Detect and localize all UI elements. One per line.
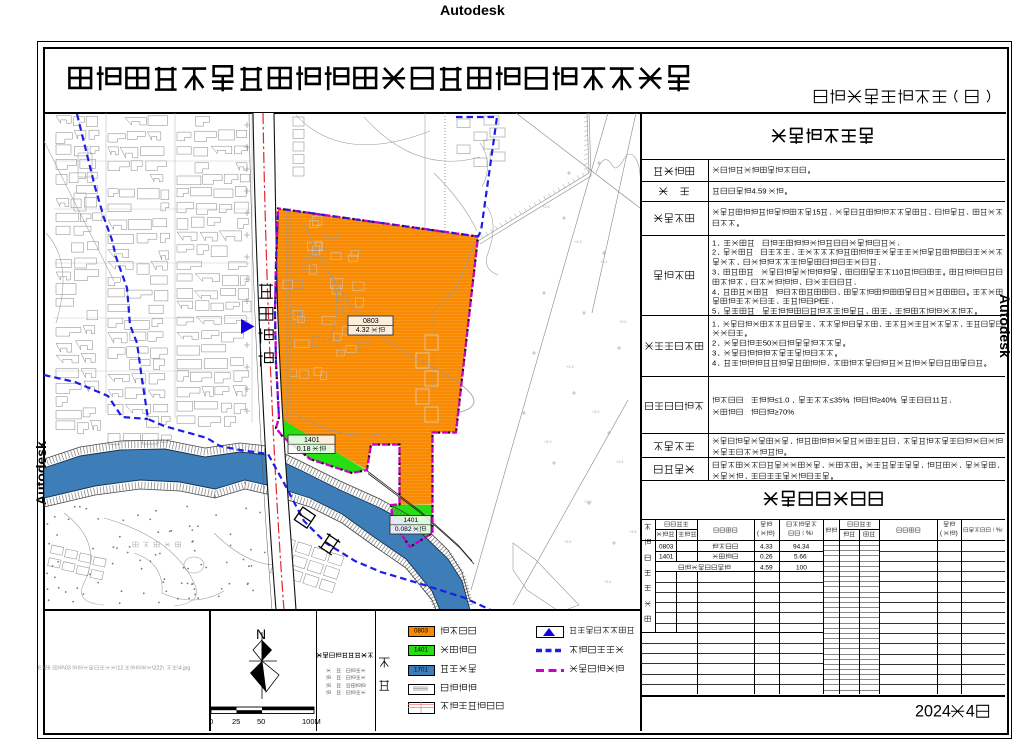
svg-text:1401: 1401 xyxy=(403,517,418,524)
svg-text:4: 4 xyxy=(712,358,717,367)
svg-text:%: % xyxy=(996,527,1001,533)
svg-text:≥70%: ≥70% xyxy=(774,407,794,416)
svg-text:+3.2: +3.2 xyxy=(592,410,600,414)
svg-text:1401: 1401 xyxy=(304,437,320,444)
svg-text:3: 3 xyxy=(712,348,716,357)
svg-text:+3.3: +3.3 xyxy=(566,365,574,369)
svg-text:≤1.0: ≤1.0 xyxy=(774,395,789,404)
svg-text:0803: 0803 xyxy=(363,318,379,325)
svg-text:+3.4: +3.4 xyxy=(600,260,608,264)
svg-text:0803: 0803 xyxy=(659,543,674,550)
svg-text:0.18: 0.18 xyxy=(297,446,311,453)
svg-text:1: 1 xyxy=(712,319,716,328)
svg-text:11: 11 xyxy=(932,395,940,404)
svg-text:2: 2 xyxy=(712,248,716,257)
svg-text:≤35%: ≤35% xyxy=(830,395,850,404)
svg-text:+3.3: +3.3 xyxy=(574,240,582,244)
svg-text:100: 100 xyxy=(796,564,807,571)
svg-text:50: 50 xyxy=(257,717,265,726)
svg-text:Autodesk: Autodesk xyxy=(440,3,505,19)
svg-text:+3.4: +3.4 xyxy=(604,580,612,584)
svg-text:4.32: 4.32 xyxy=(356,327,370,334)
svg-text:+3.2: +3.2 xyxy=(619,320,627,324)
svg-text:4.59: 4.59 xyxy=(760,564,773,571)
svg-text:): ) xyxy=(955,530,957,537)
svg-text:100M: 100M xyxy=(302,717,321,726)
svg-text:+3.3: +3.3 xyxy=(584,500,592,504)
svg-text:+3.6: +3.6 xyxy=(629,530,637,534)
svg-text:≥40%: ≥40% xyxy=(877,395,897,404)
svg-text:94.34: 94.34 xyxy=(793,543,810,550)
svg-text:+3.2: +3.2 xyxy=(544,440,552,444)
svg-text:(: ( xyxy=(757,530,759,537)
svg-text:0803: 0803 xyxy=(414,627,428,634)
svg-text:+3.4: +3.4 xyxy=(616,460,624,464)
svg-text:5.66: 5.66 xyxy=(794,554,807,561)
svg-text:4: 4 xyxy=(966,703,975,721)
svg-text:50: 50 xyxy=(763,339,772,348)
svg-text:15: 15 xyxy=(812,207,820,216)
svg-text:1401: 1401 xyxy=(659,554,674,561)
svg-text:+3.5: +3.5 xyxy=(564,540,572,544)
svg-text:3: 3 xyxy=(712,267,716,276)
svg-text:): ) xyxy=(773,530,775,537)
svg-text:1701: 1701 xyxy=(414,666,428,673)
svg-text:%: % xyxy=(806,530,812,537)
svg-text:1: 1 xyxy=(712,238,716,247)
svg-text:2024: 2024 xyxy=(915,703,951,721)
svg-text:PE: PE xyxy=(814,297,824,306)
svg-text:0.26: 0.26 xyxy=(760,554,773,561)
svg-text:4: 4 xyxy=(712,287,717,296)
svg-text:0: 0 xyxy=(209,717,213,726)
svg-text:110: 110 xyxy=(891,267,903,276)
svg-text:5: 5 xyxy=(712,307,716,316)
svg-text:2: 2 xyxy=(712,339,716,348)
svg-text:4.33: 4.33 xyxy=(760,543,773,550)
svg-text:4.59: 4.59 xyxy=(752,186,767,195)
svg-text:25: 25 xyxy=(232,717,240,726)
svg-text:1401: 1401 xyxy=(414,647,428,654)
svg-text:(: ( xyxy=(940,530,942,537)
svg-text:0.082: 0.082 xyxy=(395,526,412,533)
